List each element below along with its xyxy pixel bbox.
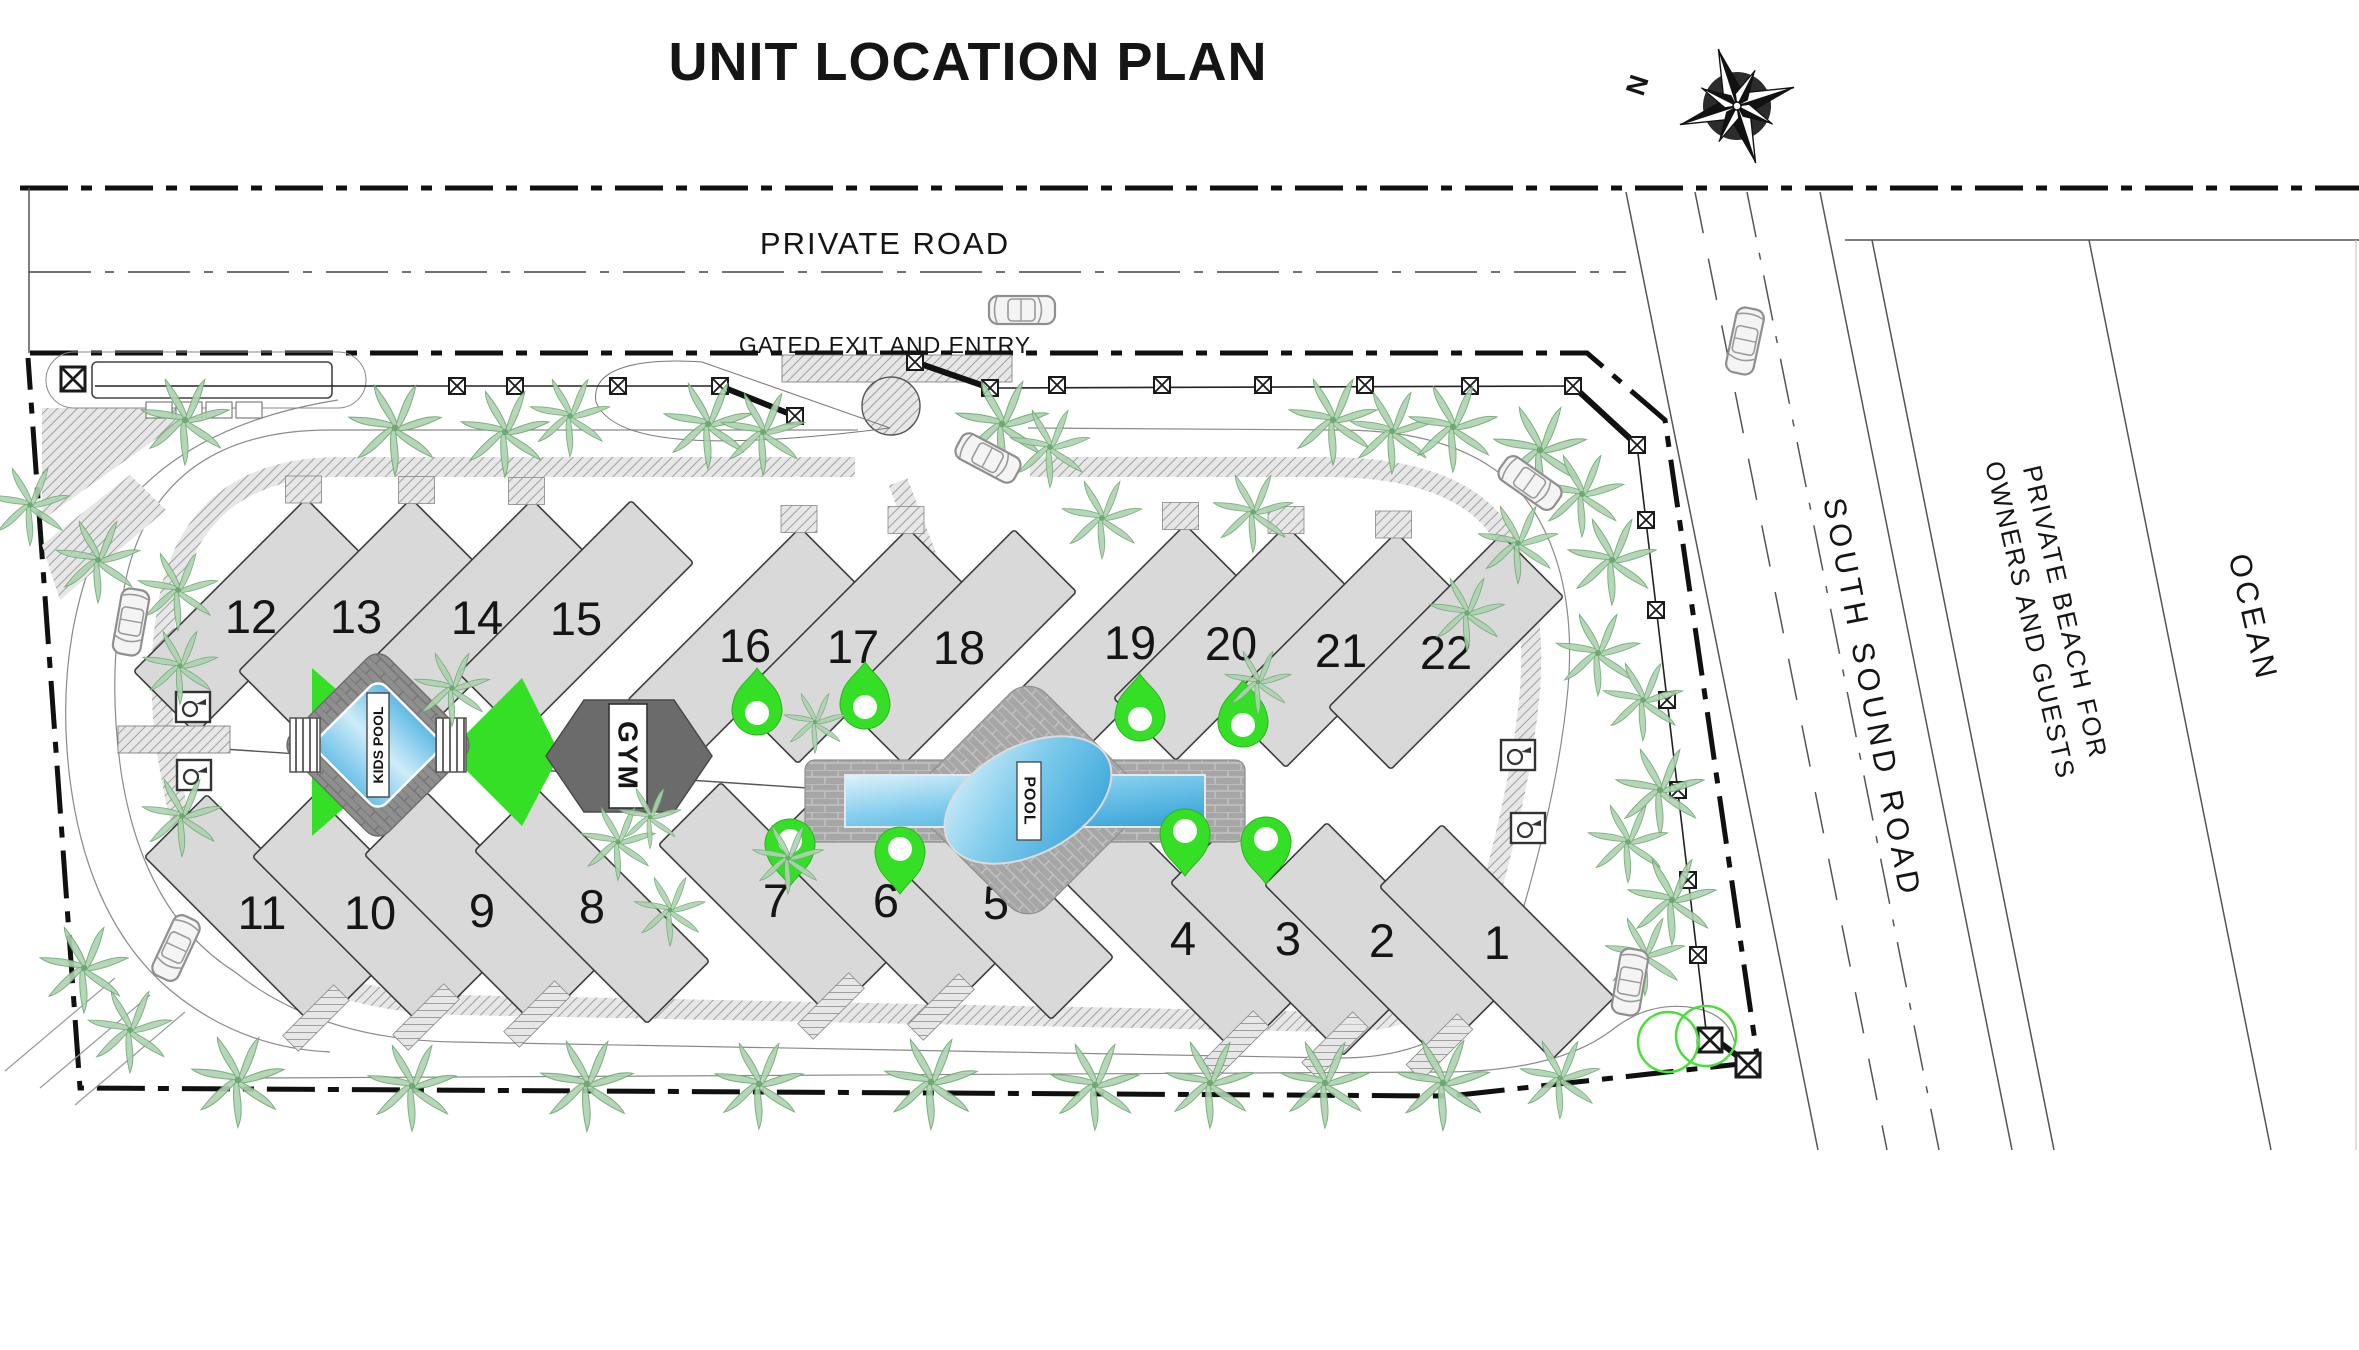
unit-number: 1 bbox=[1484, 916, 1510, 969]
fence-post-icon bbox=[610, 378, 626, 394]
kids-pool-label: KIDS POOL bbox=[370, 706, 386, 783]
pool-label: POOL bbox=[1021, 776, 1038, 825]
unit-number: 8 bbox=[579, 880, 605, 933]
gated-entry-label: GATED EXIT AND ENTRY bbox=[739, 332, 1031, 358]
unit-number: 18 bbox=[933, 621, 985, 674]
utility-box-icon bbox=[1501, 740, 1535, 770]
kids-pool-step-east bbox=[436, 718, 466, 772]
fence-post-icon bbox=[1255, 377, 1271, 393]
fence-post-icon bbox=[1049, 377, 1065, 393]
utility-box-icon bbox=[1511, 813, 1545, 843]
unit-number: 3 bbox=[1275, 912, 1301, 965]
fence-post-icon bbox=[1638, 512, 1654, 528]
kids-pool-step-west bbox=[290, 718, 320, 772]
unit-number: 9 bbox=[469, 884, 495, 937]
page-title: UNIT LOCATION PLAN bbox=[669, 32, 1268, 92]
fence-post-icon bbox=[1565, 378, 1581, 394]
unit-number: 11 bbox=[238, 886, 287, 939]
fence-post-icon bbox=[449, 378, 465, 394]
unit-number: 12 bbox=[225, 590, 277, 643]
gym-label: GYM bbox=[613, 721, 644, 791]
car-icon bbox=[989, 296, 1055, 324]
fence-post-icon bbox=[507, 378, 523, 394]
unit-number: 16 bbox=[719, 619, 771, 672]
fence-post-icon bbox=[1629, 437, 1645, 453]
unit-number: 4 bbox=[1170, 912, 1196, 965]
fence-post-icon bbox=[1648, 602, 1664, 618]
west-spine-pad bbox=[118, 726, 230, 753]
gate-post-icon bbox=[61, 367, 85, 391]
fence-post-icon bbox=[1357, 377, 1373, 393]
site-plan-canvas: 12131415161718192021221110987654321 KIDS… bbox=[0, 0, 2359, 1350]
unit-number: 2 bbox=[1369, 914, 1395, 967]
unit-number: 17 bbox=[827, 620, 879, 673]
unit-number: 15 bbox=[550, 592, 602, 645]
private-road-label: PRIVATE ROAD bbox=[760, 226, 1010, 261]
gate-post-icon bbox=[1736, 1053, 1760, 1077]
unit-location-plan: 12131415161718192021221110987654321 KIDS… bbox=[0, 0, 2359, 1350]
entry-island bbox=[862, 377, 920, 435]
unit-number: 10 bbox=[344, 886, 396, 939]
fence-post-icon bbox=[1690, 947, 1706, 963]
gate-post-icon bbox=[1698, 1028, 1722, 1052]
unit-number: 13 bbox=[330, 590, 382, 643]
unit-number: 19 bbox=[1104, 616, 1156, 669]
fence-post-icon bbox=[1154, 377, 1170, 393]
unit-number: 21 bbox=[1315, 624, 1367, 677]
